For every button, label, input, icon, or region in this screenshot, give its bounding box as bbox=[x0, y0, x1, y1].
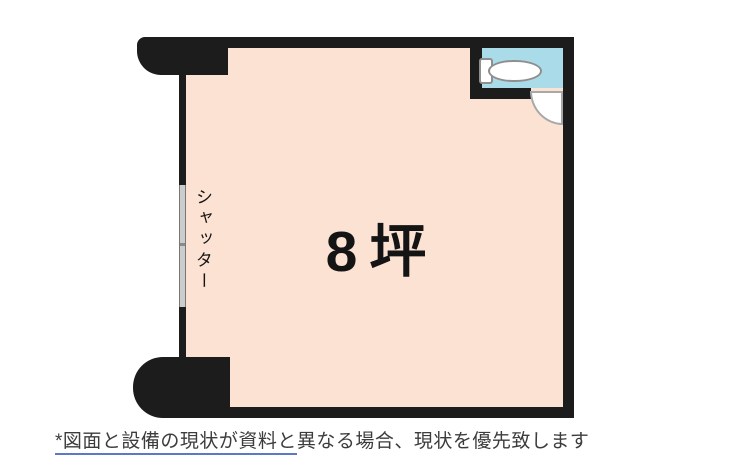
floor-plan: シャッター 8坪 *図面と設備の現状が資料と異なる場合、現状を優先致します bbox=[0, 0, 744, 466]
toilet-bowl bbox=[488, 60, 542, 82]
pillar-bottom-left bbox=[133, 357, 230, 418]
wall-left-upper bbox=[179, 70, 186, 185]
wall-top bbox=[178, 37, 574, 48]
disclaimer-rest: 異なる場合、現状を優先致します bbox=[297, 431, 590, 452]
wall-left-lower bbox=[179, 307, 186, 359]
room-area-label: 8坪 bbox=[181, 206, 571, 288]
pillar-top-left bbox=[137, 37, 228, 75]
toilet-wall-bottom bbox=[470, 88, 531, 99]
disclaimer-underlined: *図面と設備の現状が資料と bbox=[55, 431, 297, 455]
disclaimer: *図面と設備の現状が資料と異なる場合、現状を優先致します bbox=[55, 426, 589, 453]
wall-bottom bbox=[178, 407, 574, 418]
